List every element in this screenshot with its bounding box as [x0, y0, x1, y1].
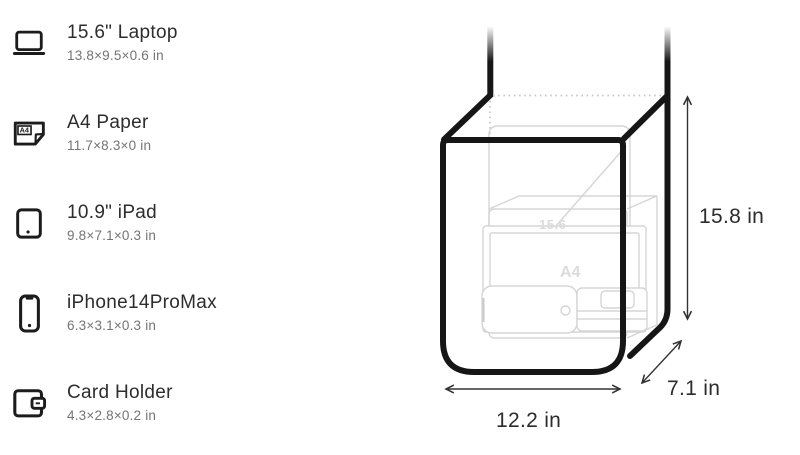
bag-diagram: 15.6 A4 15.8 in 7.1 in 12.2 in [400, 0, 800, 455]
item-name: Card Holder [67, 382, 173, 404]
item-list: 15.6" Laptop 13.8×9.5×0.6 in A4 A4 Paper… [0, 0, 330, 424]
item-name: iPhone14ProMax [67, 292, 217, 314]
bag-straps [490, 26, 667, 97]
card-holder-icon [10, 389, 48, 418]
width-dimension-label: 12.2 in [496, 409, 561, 432]
item-dimensions: 6.3×3.1×0.3 in [67, 318, 217, 334]
item-name: 10.9" iPad [67, 202, 157, 224]
ghost-items [482, 126, 657, 338]
item-name: A4 Paper [67, 112, 151, 134]
ghost-iphone [482, 286, 577, 333]
item-dimensions: 9.8×7.1×0.3 in [67, 228, 157, 244]
list-item-laptop: 15.6" Laptop 13.8×9.5×0.6 in [10, 22, 330, 64]
ipad-icon [10, 208, 48, 239]
size-guide-panel: 15.6" Laptop 13.8×9.5×0.6 in A4 A4 Paper… [0, 0, 800, 455]
a4-paper-icon: A4 [10, 121, 48, 146]
item-dimensions: 11.7×8.3×0 in [67, 138, 151, 154]
ghost-card-holder [577, 288, 647, 331]
list-item-card-holder: Card Holder 4.3×2.8×0.2 in [10, 382, 330, 424]
iphone-icon [10, 294, 48, 333]
height-dimension-label: 15.8 in [699, 205, 764, 228]
list-item-ipad: 10.9" iPad 9.8×7.1×0.3 in [10, 202, 330, 244]
laptop-icon [10, 30, 48, 56]
item-dimensions: 4.3×2.8×0.2 in [67, 408, 173, 424]
depth-dimension-label: 7.1 in [667, 377, 720, 400]
list-item-iphone: iPhone14ProMax 6.3×3.1×0.3 in [10, 292, 330, 334]
list-item-a4-paper: A4 A4 Paper 11.7×8.3×0 in [10, 112, 330, 154]
item-dimensions: 13.8×9.5×0.6 in [67, 48, 178, 64]
svg-text:A4: A4 [19, 125, 29, 134]
ghost-laptop-label: 15.6 [539, 217, 566, 232]
item-name: 15.6" Laptop [67, 22, 178, 44]
ghost-paper-label: A4 [560, 264, 581, 281]
